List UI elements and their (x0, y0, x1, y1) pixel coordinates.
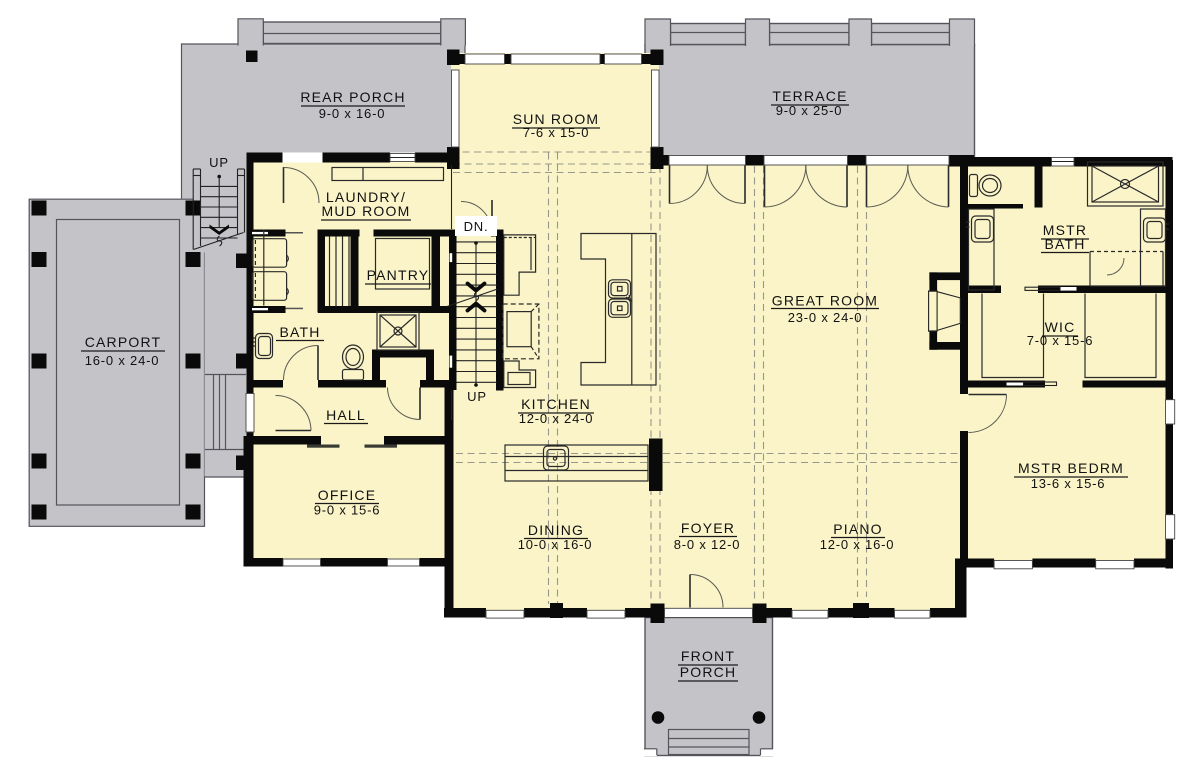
svg-text:DN.: DN. (464, 219, 489, 234)
svg-text:HALL: HALL (326, 407, 366, 423)
svg-text:12-0 x 24-0: 12-0 x 24-0 (519, 411, 594, 426)
svg-text:BATH: BATH (279, 324, 320, 340)
svg-text:7-0 x 15-6: 7-0 x 15-6 (1027, 333, 1094, 348)
svg-text:23-0 x 24-0: 23-0 x 24-0 (788, 310, 863, 325)
svg-text:UP: UP (467, 389, 487, 404)
svg-text:9-0 x 16-0: 9-0 x 16-0 (319, 106, 386, 121)
svg-text:OFFICE: OFFICE (318, 487, 377, 503)
svg-text:KITCHEN: KITCHEN (521, 396, 591, 412)
svg-text:10-0 x 16-0: 10-0 x 16-0 (518, 537, 593, 552)
svg-text:13-6 x 15-6: 13-6 x 15-6 (1031, 476, 1106, 491)
svg-text:FOYER: FOYER (681, 520, 735, 536)
svg-text:16-0 x 24-0: 16-0 x 24-0 (85, 353, 160, 368)
svg-text:CARPORT: CARPORT (85, 334, 162, 350)
svg-text:FRONT: FRONT (681, 648, 735, 664)
svg-text:PIANO: PIANO (833, 521, 883, 537)
svg-text:REAR PORCH: REAR PORCH (300, 89, 405, 105)
svg-text:DINING: DINING (528, 522, 584, 538)
svg-text:PANTRY: PANTRY (367, 267, 430, 283)
svg-text:GREAT ROOM: GREAT ROOM (772, 293, 878, 309)
svg-text:MUD ROOM: MUD ROOM (322, 203, 411, 219)
svg-text:MSTR BEDRM: MSTR BEDRM (1018, 460, 1124, 476)
svg-text:9-0 x 15-6: 9-0 x 15-6 (314, 503, 381, 518)
svg-text:UP: UP (209, 155, 229, 170)
svg-text:TERRACE: TERRACE (772, 88, 847, 104)
svg-text:8-0 x 12-0: 8-0 x 12-0 (674, 537, 741, 552)
svg-text:12-0 x 16-0: 12-0 x 16-0 (820, 537, 895, 552)
svg-text:7-6 x 15-0: 7-6 x 15-0 (523, 125, 590, 140)
svg-text:9-0 x 25-0: 9-0 x 25-0 (776, 103, 843, 118)
svg-text:BATH: BATH (1044, 236, 1085, 252)
svg-text:PORCH: PORCH (680, 664, 737, 680)
